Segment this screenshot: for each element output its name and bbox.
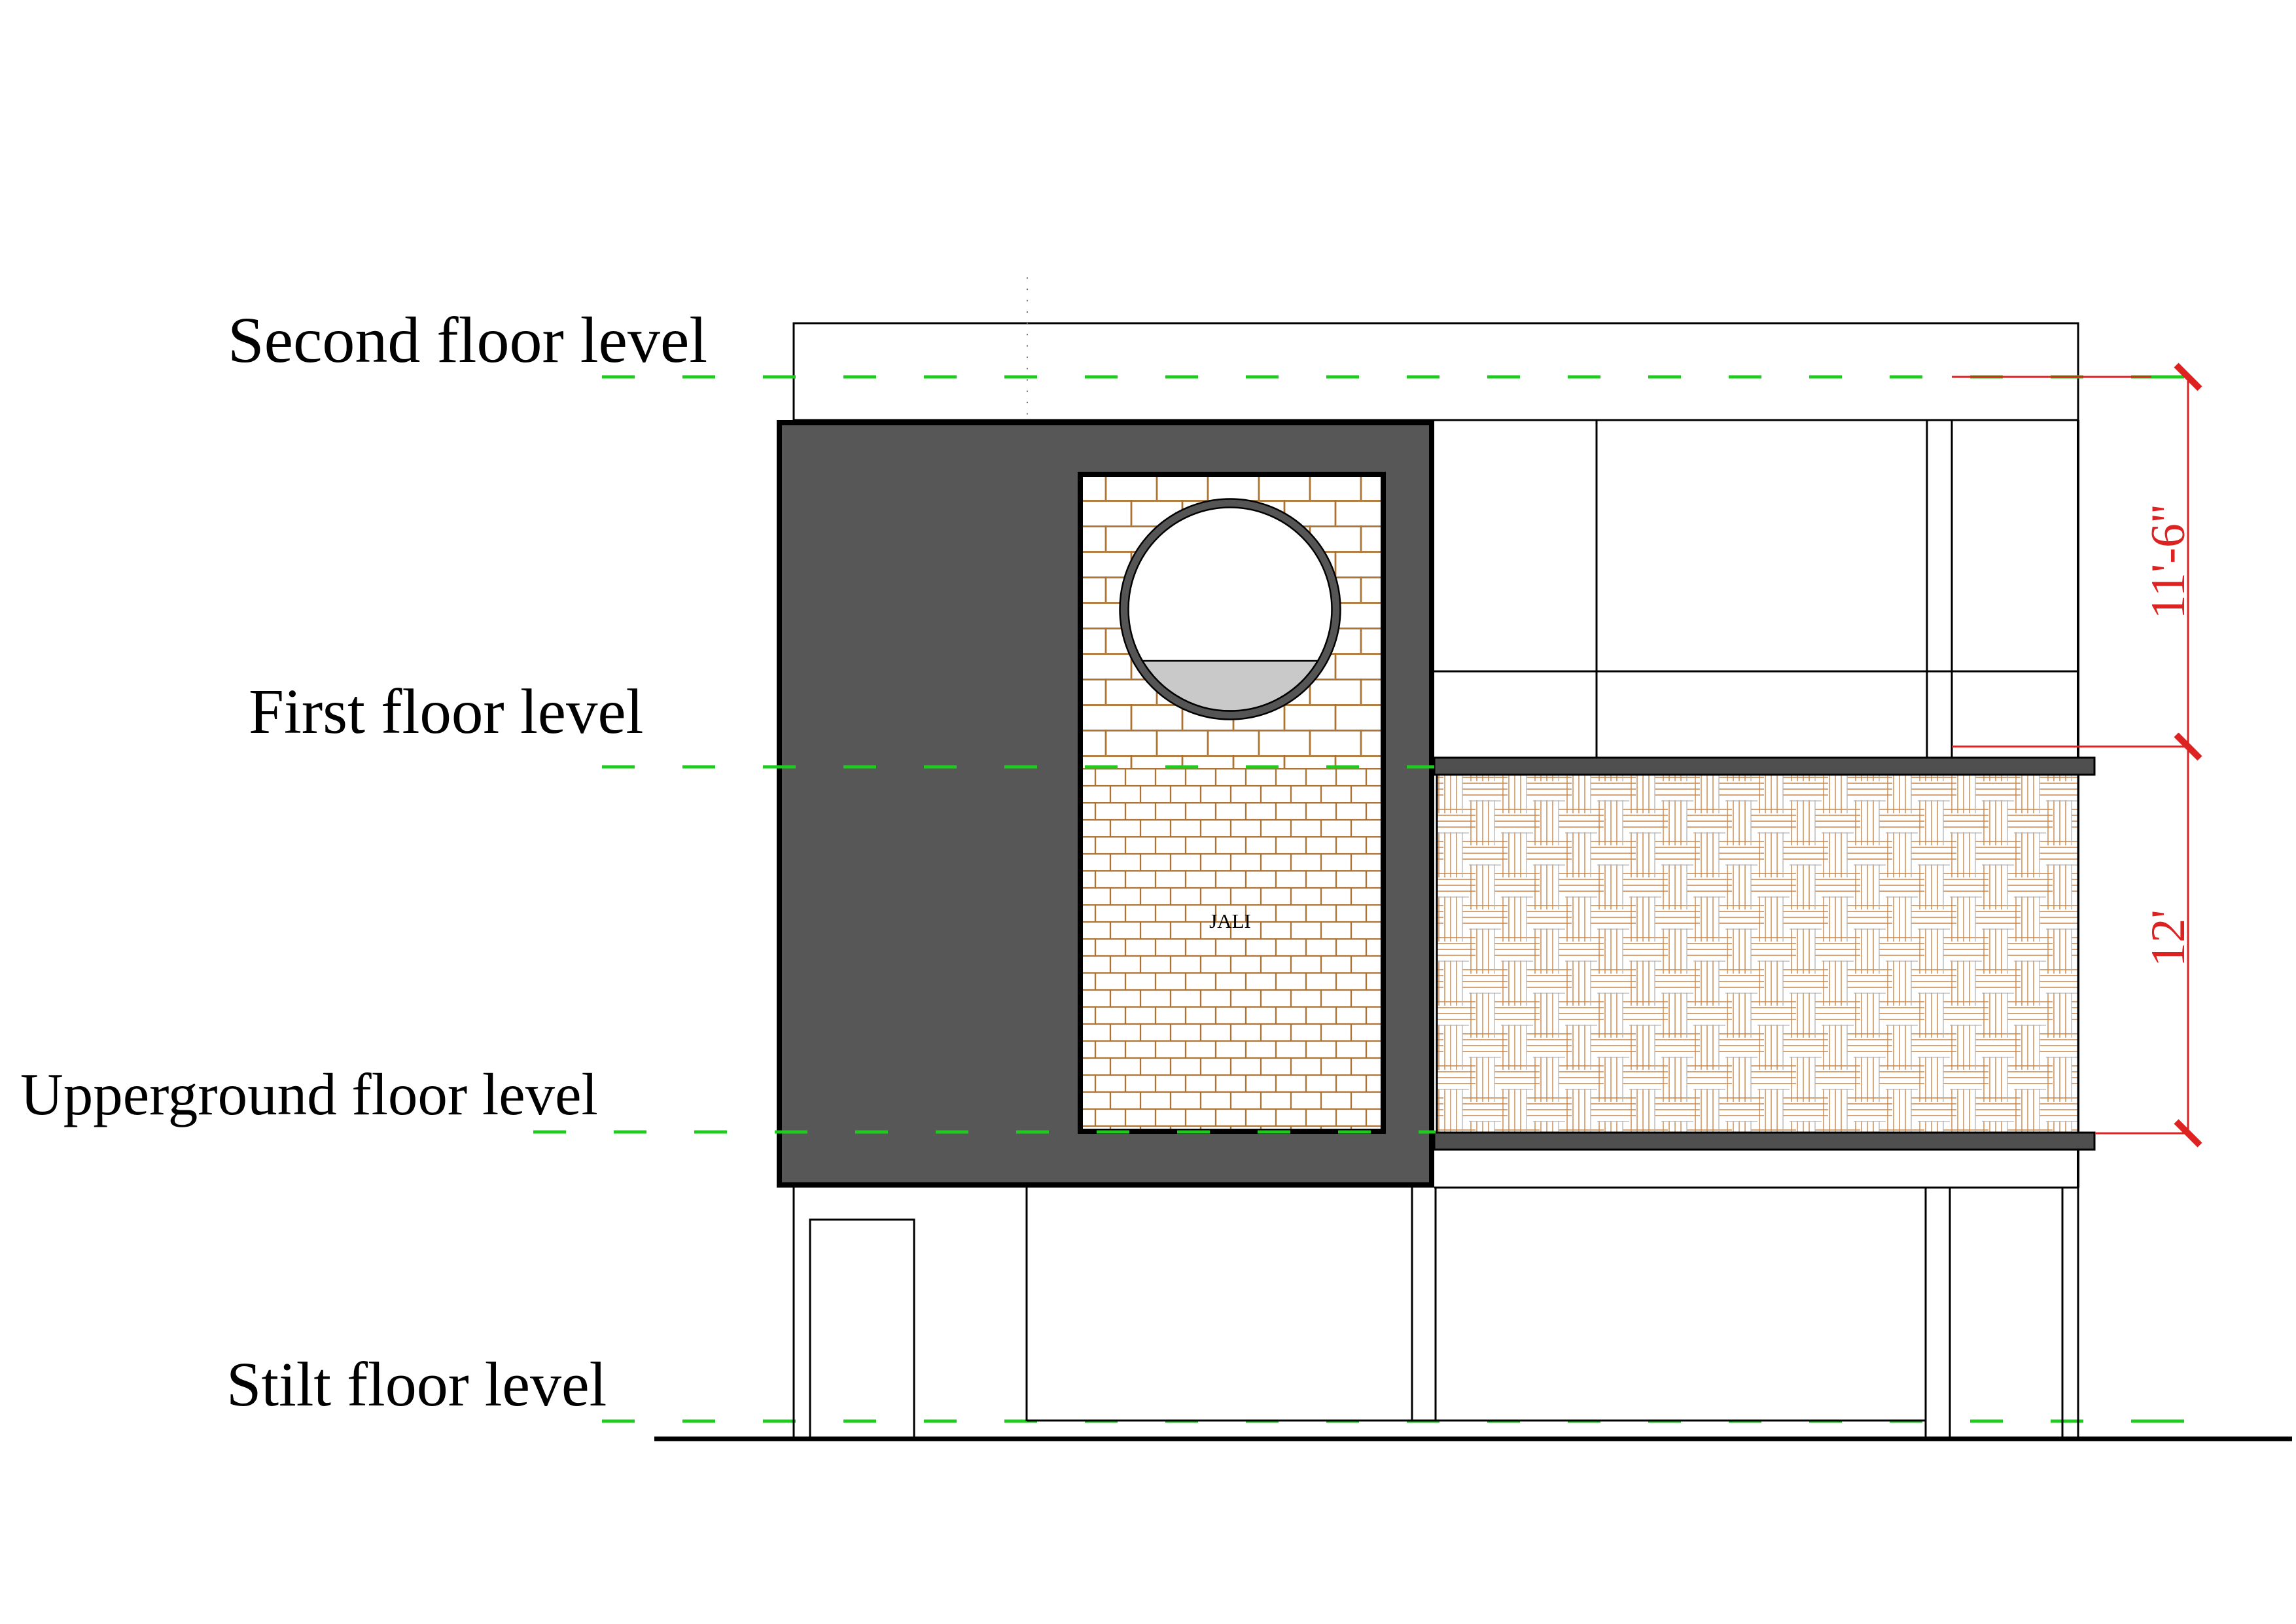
svg-text:12': 12'	[2142, 909, 2195, 966]
svg-text:JALI: JALI	[1209, 909, 1251, 932]
svg-text:Upperground floor level: Upperground floor level	[20, 1061, 598, 1127]
svg-text:11'-6": 11'-6"	[2142, 504, 2195, 619]
svg-text:Stilt floor level: Stilt floor level	[226, 1349, 607, 1419]
svg-text:First floor level: First floor level	[249, 677, 643, 747]
svg-text:Second floor level: Second floor level	[228, 304, 707, 376]
